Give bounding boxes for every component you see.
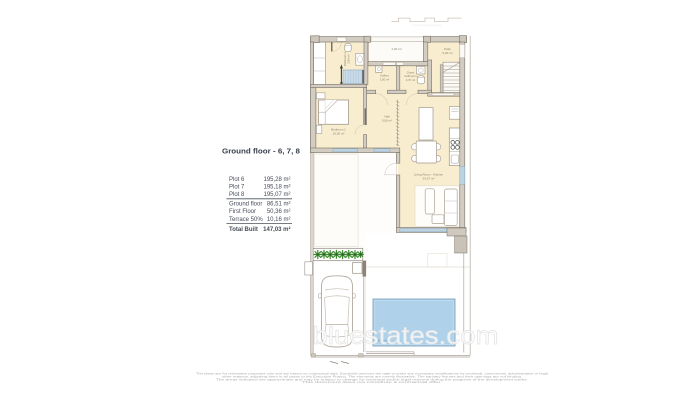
svg-text:3,70 m²: 3,70 m²	[406, 78, 416, 82]
svg-text:3,00 m²: 3,00 m²	[380, 77, 390, 81]
svg-text:147,03 m²: 147,03 m²	[263, 226, 290, 233]
svg-text:3,50 m²: 3,50 m²	[347, 54, 351, 63]
svg-text:195,18 m²: 195,18 m²	[263, 185, 290, 191]
svg-text:Ground floor: Ground floor	[229, 202, 262, 208]
svg-text:195,07 m²: 195,07 m²	[263, 192, 290, 198]
svg-text:Plot 7: Plot 7	[229, 185, 245, 191]
svg-text:Bathroom 2: Bathroom 2	[343, 52, 347, 66]
svg-text:5,00 m²: 5,00 m²	[442, 51, 452, 55]
svg-text:Plot 8: Plot 8	[229, 192, 245, 198]
svg-text:Plot 6: Plot 6	[229, 177, 245, 183]
svg-text:5,00 m²: 5,00 m²	[382, 119, 392, 123]
svg-text:86,51 m²: 86,51 m²	[267, 202, 291, 208]
svg-text:Total Built: Total Built	[229, 227, 258, 233]
svg-text:Terrace 50%: Terrace 50%	[229, 217, 263, 223]
svg-text:50,36 m²: 50,36 m²	[267, 209, 291, 215]
svg-text:195,28 m²: 195,28 m²	[263, 177, 290, 183]
svg-text:4,00 m²: 4,00 m²	[391, 47, 401, 51]
svg-text:seccion esquema planta: seccion esquema planta	[413, 23, 442, 27]
svg-text:10,00 m²: 10,00 m²	[333, 131, 345, 135]
svg-text:This document does not constit: This document does not constitute a cont…	[302, 381, 443, 384]
svg-text:Ground floor - 6, 7, 8: Ground floor - 6, 7, 8	[222, 146, 300, 155]
svg-text:33,07 m²: 33,07 m²	[423, 177, 435, 181]
svg-text:bluestates.com: bluestates.com	[313, 322, 499, 350]
svg-text:10,16 m²: 10,16 m²	[267, 217, 291, 223]
svg-text:First Floor: First Floor	[229, 209, 256, 215]
